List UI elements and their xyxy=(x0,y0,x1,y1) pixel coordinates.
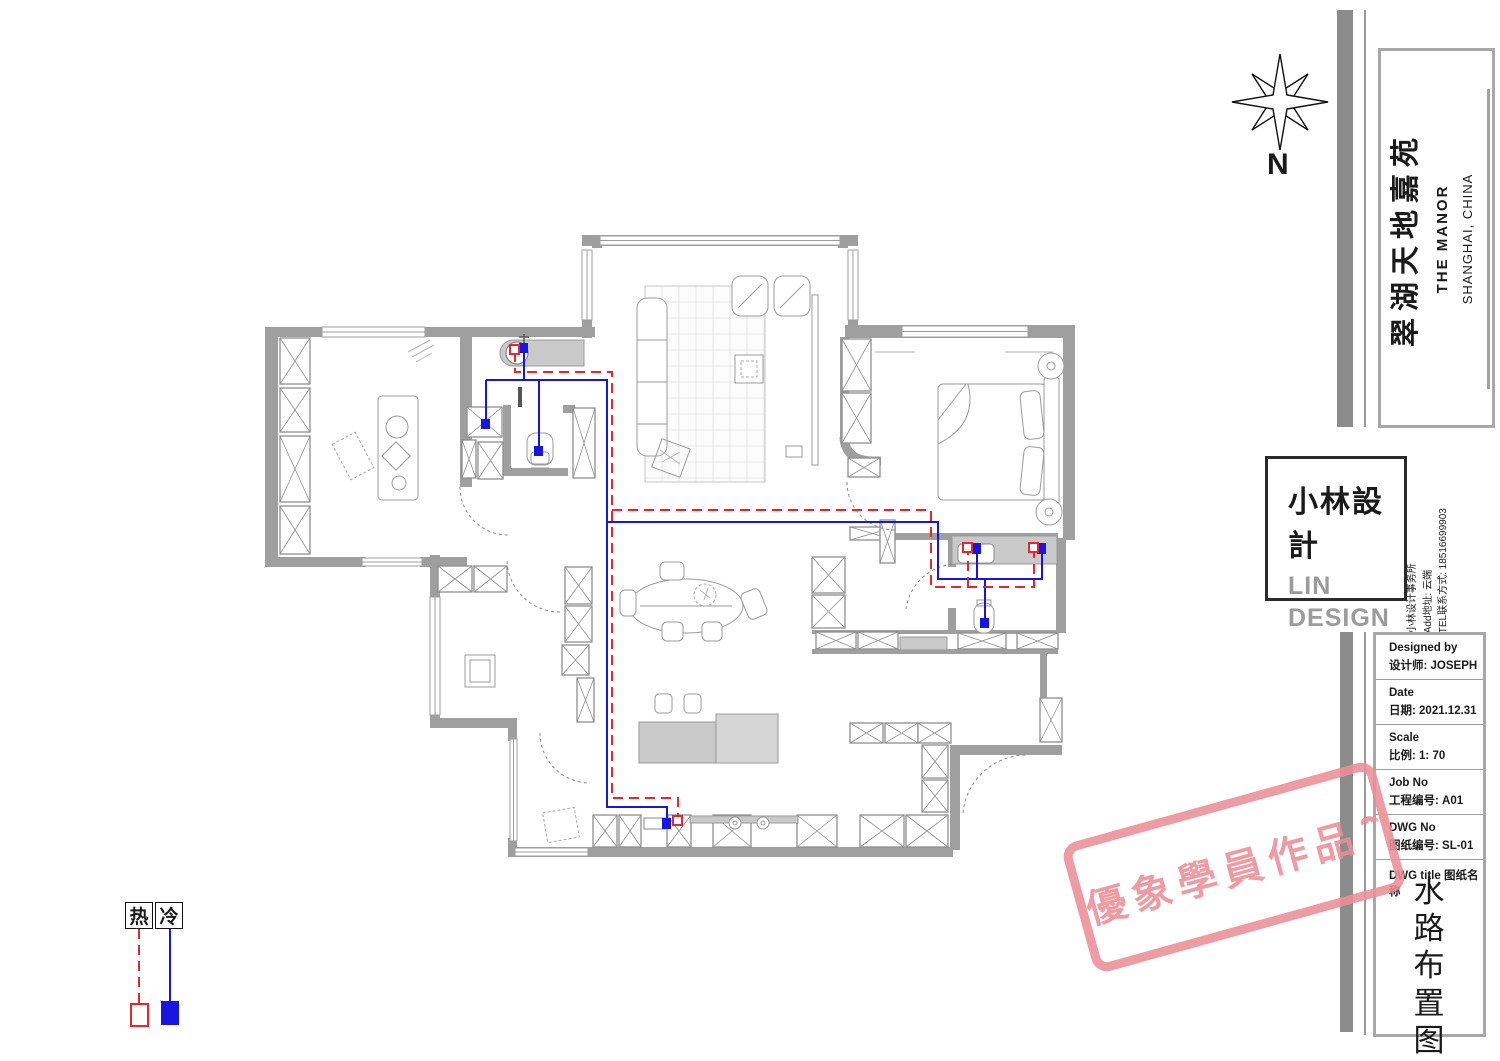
kitchen-sink xyxy=(644,818,665,829)
info-row-scale: Scale 比例: 1: 70 xyxy=(1376,725,1483,770)
dining-chair xyxy=(702,622,722,641)
legend-hot-label: 热 xyxy=(125,902,153,929)
island-top xyxy=(716,714,778,763)
bath-slab xyxy=(900,637,947,650)
desk-chair xyxy=(386,416,408,438)
bar-stool-2 xyxy=(684,694,701,713)
headboard xyxy=(1044,377,1059,505)
north-label: N xyxy=(1267,148,1289,182)
firm-address: Add地址: 云端 xyxy=(1420,493,1436,633)
dining-chair xyxy=(660,562,684,580)
project-name-cn: 翠湖天地嘉苑 xyxy=(1382,131,1424,347)
legend-cold-square xyxy=(161,1001,179,1025)
logo-box: 小林設計 LIN DESIGN xyxy=(1265,456,1407,601)
legend-lines xyxy=(131,929,179,1026)
value-designed-by: 设计师: JOSEPH xyxy=(1389,657,1483,673)
compass-icon xyxy=(1232,54,1328,150)
kitchen-counter xyxy=(690,816,798,823)
dining-chair xyxy=(620,590,636,616)
label-job-no: Job No xyxy=(1389,777,1483,789)
project-name-en: THE MANOR xyxy=(1434,185,1451,294)
desk xyxy=(378,396,418,500)
coffee-table xyxy=(735,355,763,383)
bar-stool-1 xyxy=(655,694,672,713)
pillow-2 xyxy=(1020,446,1045,496)
project-title-box: 翠湖天地嘉苑 THE MANOR SHANGHAI, CHINA xyxy=(1378,48,1495,428)
label-dwg-no: DWG No xyxy=(1389,822,1483,834)
value-scale: 比例: 1: 70 xyxy=(1389,747,1483,763)
legend-hot-square xyxy=(131,1004,148,1026)
logo-name-cn: 小林設計 xyxy=(1288,477,1404,565)
pillow-1 xyxy=(1020,390,1045,440)
logo-line1: LIN xyxy=(1288,571,1404,601)
logo-line2: DESIGN xyxy=(1288,603,1404,633)
dining-chair xyxy=(662,622,683,641)
sofa xyxy=(637,298,667,456)
label-scale: Scale xyxy=(1389,732,1483,744)
project-rule xyxy=(1487,89,1490,389)
entry-item xyxy=(543,807,580,842)
legend-cold-text: 冷 xyxy=(159,902,178,929)
strip-bar-top xyxy=(1337,10,1353,427)
armchair-dashed xyxy=(332,432,374,480)
value-dwg-no: 图纸编号: SL-01 xyxy=(1389,837,1483,853)
firm-phone: TEL联系方式: 18516699903 xyxy=(1436,493,1452,633)
project-title-rotated: 翠湖天地嘉苑 THE MANOR SHANGHAI, CHINA xyxy=(1381,59,1491,419)
nightstand-lamp-1 xyxy=(1038,353,1064,379)
label-date: Date xyxy=(1389,687,1483,699)
page: { "compass": { "label": "N" }, "legend":… xyxy=(0,0,1500,1061)
small-box xyxy=(786,446,802,457)
nightstand-lamp-2 xyxy=(1036,499,1062,525)
tv-bench xyxy=(812,295,818,465)
info-row-designed-by: Designed by 设计师: JOSEPH xyxy=(1376,635,1483,680)
legend-hot-text: 热 xyxy=(129,902,148,929)
label-designed-by: Designed by xyxy=(1389,642,1483,654)
value-job-no: 工程编号: A01 xyxy=(1389,792,1483,808)
burner-1 xyxy=(729,817,741,829)
drawing-title-vertical: 水路布置图 xyxy=(1412,873,1446,1059)
value-date: 日期: 2021.12.31 xyxy=(1389,702,1483,718)
project-location: SHANGHAI, CHINA xyxy=(1460,174,1475,305)
dining-chair xyxy=(739,587,768,620)
door-frame-tick xyxy=(518,387,522,407)
strip-line-top xyxy=(1364,10,1366,427)
info-row-job-no: Job No 工程编号: A01 xyxy=(1376,770,1483,815)
burner-2 xyxy=(757,817,769,829)
firm-name: 小林设计事务所 xyxy=(1405,493,1421,633)
wall-art-scribble xyxy=(408,340,434,362)
firm-contact-rotated: 小林设计事务所 Add地址: 云端 TEL联系方式: 18516699903 xyxy=(1405,493,1452,633)
info-row-date: Date 日期: 2021.12.31 xyxy=(1376,680,1483,725)
legend-cold-label: 冷 xyxy=(155,902,183,929)
